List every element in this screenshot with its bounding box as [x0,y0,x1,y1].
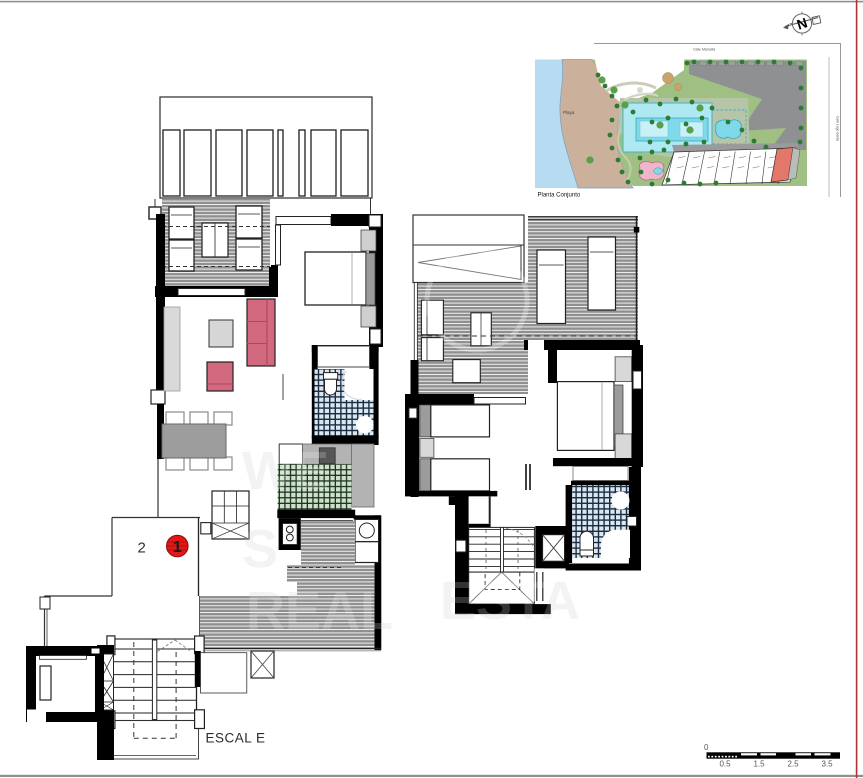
svg-text:Planta Conjunto: Planta Conjunto [538,193,581,199]
svg-text:ESCAL E: ESCAL E [206,731,266,746]
svg-text:2: 2 [138,540,146,557]
svg-text:3.5: 3.5 [821,760,833,769]
svg-text:1: 1 [173,539,182,556]
svg-text:WE: WE [242,441,329,501]
svg-text:0: 0 [704,743,709,752]
svg-text:Calle Lago Garda: Calle Lago Garda [836,116,840,141]
svg-text:Playa: Playa [563,110,575,115]
svg-text:REAL: REAL [246,581,393,641]
svg-text:1.5: 1.5 [753,760,765,769]
svg-text:Calle Marsella: Calle Marsella [693,48,715,52]
svg-text:S: S [242,519,278,579]
svg-text:ESTA: ESTA [440,571,580,631]
svg-text:0.5: 0.5 [719,760,731,769]
svg-text:2.5: 2.5 [787,760,799,769]
svg-text:N: N [795,14,810,32]
